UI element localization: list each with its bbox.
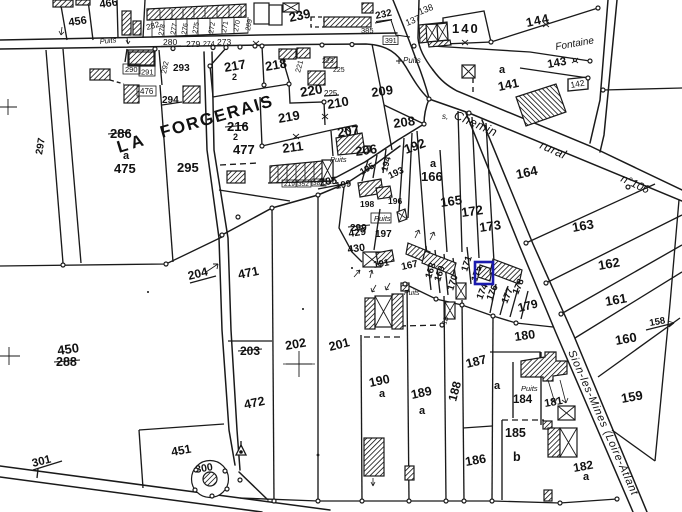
svg-text:a: a <box>583 471 590 483</box>
svg-text:295: 295 <box>177 160 199 175</box>
svg-text:273: 273 <box>217 37 231 47</box>
svg-text:a: a <box>379 388 386 400</box>
svg-text:184: 184 <box>513 394 533 406</box>
svg-text:279: 279 <box>186 39 200 49</box>
svg-text:290: 290 <box>125 65 138 74</box>
svg-text:280: 280 <box>163 37 177 47</box>
svg-text:206: 206 <box>354 141 378 159</box>
svg-text:198: 198 <box>360 199 374 209</box>
svg-text:208: 208 <box>392 113 416 131</box>
svg-text:173: 173 <box>478 217 502 235</box>
svg-text:a: a <box>494 380 501 392</box>
svg-text:211: 211 <box>281 138 304 156</box>
svg-text:172: 172 <box>460 202 484 220</box>
svg-text:291: 291 <box>141 68 154 77</box>
svg-text:Puits: Puits <box>374 214 391 223</box>
svg-text:a: a <box>328 179 332 186</box>
svg-text:209: 209 <box>370 82 394 100</box>
svg-text:225: 225 <box>333 67 345 74</box>
svg-text:Puits: Puits <box>521 384 538 393</box>
svg-text:385: 385 <box>361 26 374 35</box>
svg-text:a: a <box>430 158 437 170</box>
svg-text:a: a <box>419 405 426 417</box>
svg-text:b: b <box>513 450 521 464</box>
svg-text:185: 185 <box>505 426 526 440</box>
svg-text:294: 294 <box>162 95 179 106</box>
svg-text:180: 180 <box>513 327 536 344</box>
svg-text:166: 166 <box>421 169 443 184</box>
svg-text:293: 293 <box>173 63 190 74</box>
svg-text:Puits: Puits <box>99 35 117 46</box>
svg-text:477: 477 <box>233 142 255 157</box>
svg-text:s,: s, <box>442 112 448 121</box>
svg-text:Puits: Puits <box>330 155 347 164</box>
svg-text:a: a <box>499 64 506 76</box>
svg-text:Puits: Puits <box>404 290 420 297</box>
svg-text:429: 429 <box>348 226 367 240</box>
svg-text:165: 165 <box>439 192 463 210</box>
svg-text:Puits: Puits <box>403 56 421 65</box>
svg-text:2: 2 <box>232 72 237 82</box>
svg-text:430: 430 <box>347 242 366 256</box>
svg-text:391: 391 <box>385 38 397 45</box>
svg-text:456: 456 <box>68 15 88 29</box>
svg-text:2: 2 <box>233 132 238 142</box>
svg-text:223: 223 <box>322 58 334 65</box>
svg-text:207: 207 <box>336 122 360 140</box>
svg-text:475: 475 <box>114 161 136 176</box>
svg-text:140: 140 <box>452 21 480 36</box>
svg-text:197: 197 <box>375 229 392 240</box>
svg-text:476: 476 <box>140 87 154 96</box>
svg-text:196: 196 <box>388 196 402 206</box>
